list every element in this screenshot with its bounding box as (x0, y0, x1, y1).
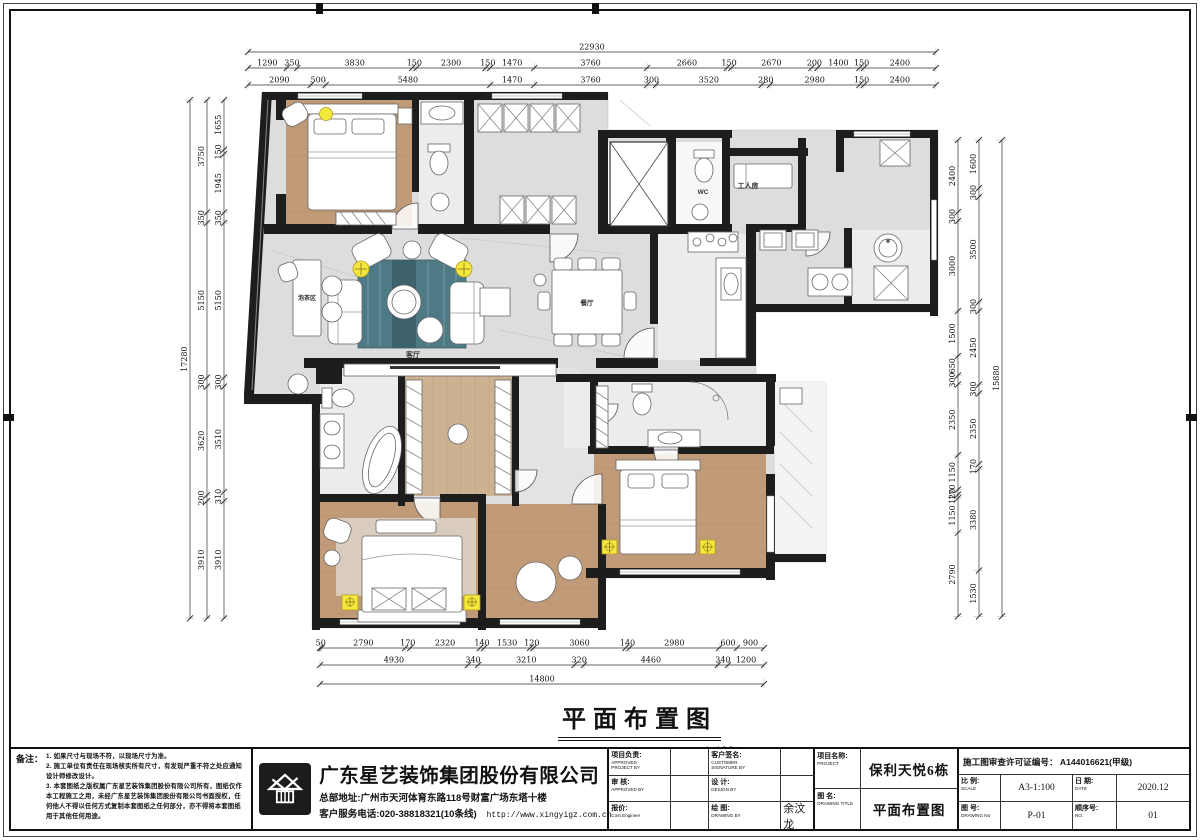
svg-text:1400: 1400 (828, 59, 848, 68)
scale-value: A3-1:100 (1001, 775, 1073, 801)
ottoman-icon (417, 317, 443, 343)
dim-bottom-total: 14800 (317, 675, 767, 689)
dim-bottom-row2: 4930340321032044603401200 (317, 656, 767, 670)
date-value: 2020.12 (1117, 775, 1189, 801)
titleblock: 备注： 1. 如果尺寸与现场不符，以现场尺寸为准。 2. 施工单位有责任在现场核… (11, 747, 1189, 829)
drawing-title: 平面布置图 (558, 699, 721, 741)
svg-text:3620: 3620 (197, 431, 206, 451)
svg-text:300: 300 (644, 76, 659, 85)
permit-number: 施工图审查许可证编号： A144016621(甲级) (959, 749, 1189, 775)
svg-text:300: 300 (969, 185, 978, 200)
field-cost: 报价:Cost Engineer (609, 802, 671, 829)
project-section: 项目名称:PROJECT 保利天悦6栋 图 名:DRAWING TITLE 平面… (815, 749, 959, 829)
svg-text:150: 150 (214, 144, 223, 159)
svg-text:3760: 3760 (580, 59, 600, 68)
balcony-floor (775, 382, 826, 556)
svg-text:2660: 2660 (677, 59, 697, 68)
basin-icon (648, 430, 700, 447)
svg-text:120: 120 (948, 489, 957, 504)
dining-room-label: 餐厅 (580, 298, 595, 307)
svg-text:1500: 1500 (948, 323, 957, 343)
company-address: 总部地址:广州市天河体育东路118号财富广场东塔十楼 (319, 790, 611, 804)
ottoman-icon (324, 550, 340, 566)
coffee-table-icon (387, 285, 421, 319)
company-name: 广东星艺装饰集团股份有限公司 (319, 759, 611, 788)
svg-text:1530: 1530 (969, 583, 978, 603)
stool-icon (448, 424, 468, 444)
svg-text:300: 300 (948, 209, 957, 224)
field-project-lead: 项目负责:APPROVED PROJECT BY (609, 749, 671, 776)
drawn-by-value: 余汶龙 (781, 802, 815, 829)
svg-text:340: 340 (465, 656, 480, 665)
note-line: 2. 施工单位有责任在现场核实所有尺寸，有发现严重不符之处应通知设计师修改设计。 (46, 762, 247, 782)
dim-top-row1: 1290350383015023001501470376026601502670… (245, 59, 939, 73)
drawing-no-value: P-01 (1001, 802, 1073, 829)
sofa-icon (450, 282, 484, 344)
svg-text:310: 310 (214, 489, 223, 504)
svg-text:340: 340 (715, 656, 730, 665)
field-customer-signature: 客户签名:CUSTOMER SIGNATURE BY (709, 749, 781, 776)
svg-text:4930: 4930 (384, 656, 404, 665)
sink-icon (760, 230, 786, 250)
svg-text:150: 150 (721, 59, 736, 68)
dim-left-total: 17280 (180, 97, 194, 621)
counter-icon (716, 258, 746, 358)
plant-icon (288, 374, 308, 394)
svg-text:300: 300 (969, 381, 978, 396)
svg-text:2350: 2350 (969, 419, 978, 439)
svg-text:1600: 1600 (969, 154, 978, 174)
svg-text:14800: 14800 (529, 675, 554, 684)
toilet-icon (632, 384, 652, 415)
svg-text:2980: 2980 (805, 76, 825, 85)
house-logo-icon (265, 769, 305, 809)
svg-text:2300: 2300 (441, 59, 461, 68)
svg-text:3500: 3500 (969, 239, 978, 259)
balcony-unit-icon (780, 388, 802, 404)
side-table-icon (403, 241, 421, 259)
bed-icon (616, 460, 700, 554)
svg-text:2090: 2090 (269, 76, 289, 85)
svg-text:200: 200 (807, 59, 822, 68)
svg-text:1945: 1945 (214, 173, 223, 193)
svg-text:2790: 2790 (948, 564, 957, 584)
living-room-label: 客厅 (405, 350, 420, 359)
dim-right-total: 15880 (992, 137, 1006, 619)
basin-icon (692, 204, 708, 220)
svg-text:4460: 4460 (641, 656, 661, 665)
svg-text:900: 900 (743, 639, 758, 648)
svg-text:150: 150 (407, 59, 422, 68)
svg-text:350: 350 (197, 210, 206, 225)
company-logo (259, 763, 311, 815)
project-name-label: 项目名称:PROJECT (815, 749, 861, 788)
wardrobe-icon (596, 386, 608, 448)
svg-text:3750: 3750 (197, 146, 206, 166)
svg-text:3830: 3830 (344, 59, 364, 68)
svg-text:1150: 1150 (948, 505, 957, 525)
company-phone: 客户服务电话:020-38818321(10条线) (319, 809, 476, 820)
svg-text:3520: 3520 (699, 76, 719, 85)
tv-console-icon (344, 364, 556, 376)
svg-text:300: 300 (969, 299, 978, 314)
svg-text:2450: 2450 (969, 338, 978, 358)
basin-icon (421, 102, 463, 124)
svg-text:3910: 3910 (197, 550, 206, 570)
elevator-icon (610, 142, 668, 226)
notes-box: 备注： 1. 如果尺寸与现场不符，以现场尺寸为准。 2. 施工单位有责任在现场核… (11, 749, 253, 829)
svg-text:150: 150 (854, 59, 869, 68)
svg-text:2400: 2400 (948, 166, 957, 186)
field-value-empty (781, 749, 815, 776)
svg-text:3510: 3510 (214, 429, 223, 449)
svg-text:150: 150 (480, 59, 495, 68)
sink-icon (792, 230, 818, 250)
personnel-grid: 项目负责:APPROVED PROJECT BY 客户签名:CUSTOMER S… (609, 749, 815, 829)
notes-heading: 备注： (16, 752, 43, 827)
bed-icon (298, 104, 412, 210)
svg-text:2350: 2350 (948, 410, 957, 430)
dim-left-inner: 16551501945350515030035103103910 (214, 97, 228, 621)
date-label: 日 期:DATE (1073, 775, 1117, 801)
svg-text:140: 140 (474, 639, 489, 648)
svg-text:300: 300 (948, 372, 957, 387)
coffee-table-icon (480, 288, 510, 316)
svg-text:150: 150 (854, 76, 869, 85)
field-drawn-by: 绘 图:DRAWING BY (709, 802, 781, 829)
field-value-empty (671, 776, 709, 803)
seq-no-label: 顺序号:NO. (1073, 802, 1117, 829)
svg-text:170: 170 (969, 459, 978, 474)
company-website: http://www.xingyigz.com.cn (487, 811, 612, 820)
svg-text:1290: 1290 (257, 59, 277, 68)
svg-text:3380: 3380 (969, 510, 978, 530)
drawing-no-label: 图 号:DRAWING No (959, 802, 1001, 829)
scale-label: 比 例:SCALE (959, 775, 1001, 801)
permit-section: 施工图审查许可证编号： A144016621(甲级) 比 例:SCALE A3-… (959, 749, 1189, 829)
stove-icon (688, 232, 738, 252)
dim-right-outer: 160030035003002450300235017033801530 (969, 137, 983, 619)
svg-text:3060: 3060 (569, 639, 589, 648)
dim-top-total: 22930 (245, 43, 939, 57)
company-box: 广东星艺装饰集团股份有限公司 总部地址:广州市天河体育东路118号财富广场东塔十… (253, 749, 609, 829)
svg-text:300: 300 (197, 374, 206, 389)
svg-text:5150: 5150 (214, 290, 223, 310)
svg-text:5480: 5480 (398, 76, 418, 85)
dim-right-inner: 2400300300015006503002350115017012011502… (948, 137, 962, 619)
svg-text:3760: 3760 (580, 76, 600, 85)
field-value-empty (671, 802, 709, 829)
seq-no-value: 01 (1117, 802, 1189, 829)
svg-text:320: 320 (572, 656, 587, 665)
svg-text:5150: 5150 (197, 290, 206, 310)
svg-text:140: 140 (620, 639, 635, 648)
svg-text:17280: 17280 (180, 346, 189, 371)
svg-text:2790: 2790 (353, 639, 373, 648)
washer-icon (874, 234, 902, 262)
floor-plan: 工人房 WC 客厅 餐厅 泡茶区 22930129035038301502300… (0, 0, 1200, 755)
dim-left-mid: 3750350515030036202003910 (197, 97, 211, 621)
svg-text:3000: 3000 (948, 256, 957, 276)
svg-text:650: 650 (948, 358, 957, 373)
svg-text:1530: 1530 (497, 639, 517, 648)
drawing-sheet: { "sheet": { "title": "平面布置图", "scale_la… (0, 0, 1200, 840)
pendant-icon (534, 274, 546, 286)
svg-text:120: 120 (524, 639, 539, 648)
stove-icon (808, 268, 852, 296)
note-line: 1. 如果尺寸与现场不符，以现场尺寸为准。 (46, 752, 247, 762)
shower-drain-icon (431, 193, 449, 211)
drawing-title-value: 平面布置图 (861, 789, 957, 829)
svg-text:1200: 1200 (736, 656, 756, 665)
dim-bottom-row1: 5027901702320140153012030601402980600900 (316, 639, 767, 653)
svg-text:1470: 1470 (502, 76, 522, 85)
wc-label: WC (698, 189, 709, 196)
tv-icon (390, 366, 500, 369)
note-line: 3. 本套图纸之版权属广东星艺装饰集团股份有限公司所有，图纸仅作本工程施工之用，… (46, 782, 247, 822)
svg-text:2400: 2400 (890, 76, 910, 85)
svg-text:15880: 15880 (992, 365, 1001, 390)
field-value-empty (671, 749, 709, 776)
svg-text:2980: 2980 (664, 639, 684, 648)
svg-text:350: 350 (284, 59, 299, 68)
svg-text:1655: 1655 (214, 115, 223, 135)
toilet-icon (322, 388, 354, 408)
basin-icon (320, 414, 344, 468)
svg-text:2400: 2400 (890, 59, 910, 68)
svg-text:280: 280 (758, 76, 773, 85)
svg-text:1470: 1470 (502, 59, 522, 68)
worker-room-label: 工人房 (738, 181, 759, 190)
study-floor (486, 504, 598, 620)
svg-text:22930: 22930 (579, 43, 604, 52)
field-design: 设 计:DESIGN BY (709, 776, 781, 803)
svg-text:3210: 3210 (516, 656, 536, 665)
field-approved: 审 核:APPROVED BY (609, 776, 671, 803)
project-name-value: 保利天悦6栋 (861, 749, 957, 788)
dim-top-row2: 2090500548014703760300352028029801502400 (245, 76, 939, 90)
field-value-empty (781, 776, 815, 803)
svg-text:50: 50 (316, 639, 326, 648)
svg-text:200: 200 (197, 490, 206, 505)
svg-text:1150: 1150 (948, 462, 957, 482)
tea-area-label: 泡茶区 (298, 294, 316, 302)
svg-text:2670: 2670 (761, 59, 781, 68)
svg-text:300: 300 (214, 374, 223, 389)
svg-text:350: 350 (214, 210, 223, 225)
svg-text:3910: 3910 (214, 550, 223, 570)
svg-text:500: 500 (311, 76, 326, 85)
svg-text:170: 170 (400, 639, 415, 648)
svg-text:600: 600 (720, 639, 735, 648)
svg-text:2320: 2320 (435, 639, 455, 648)
drawing-title-label: 图 名:DRAWING TITLE (815, 789, 861, 829)
toilet-icon (694, 150, 714, 182)
